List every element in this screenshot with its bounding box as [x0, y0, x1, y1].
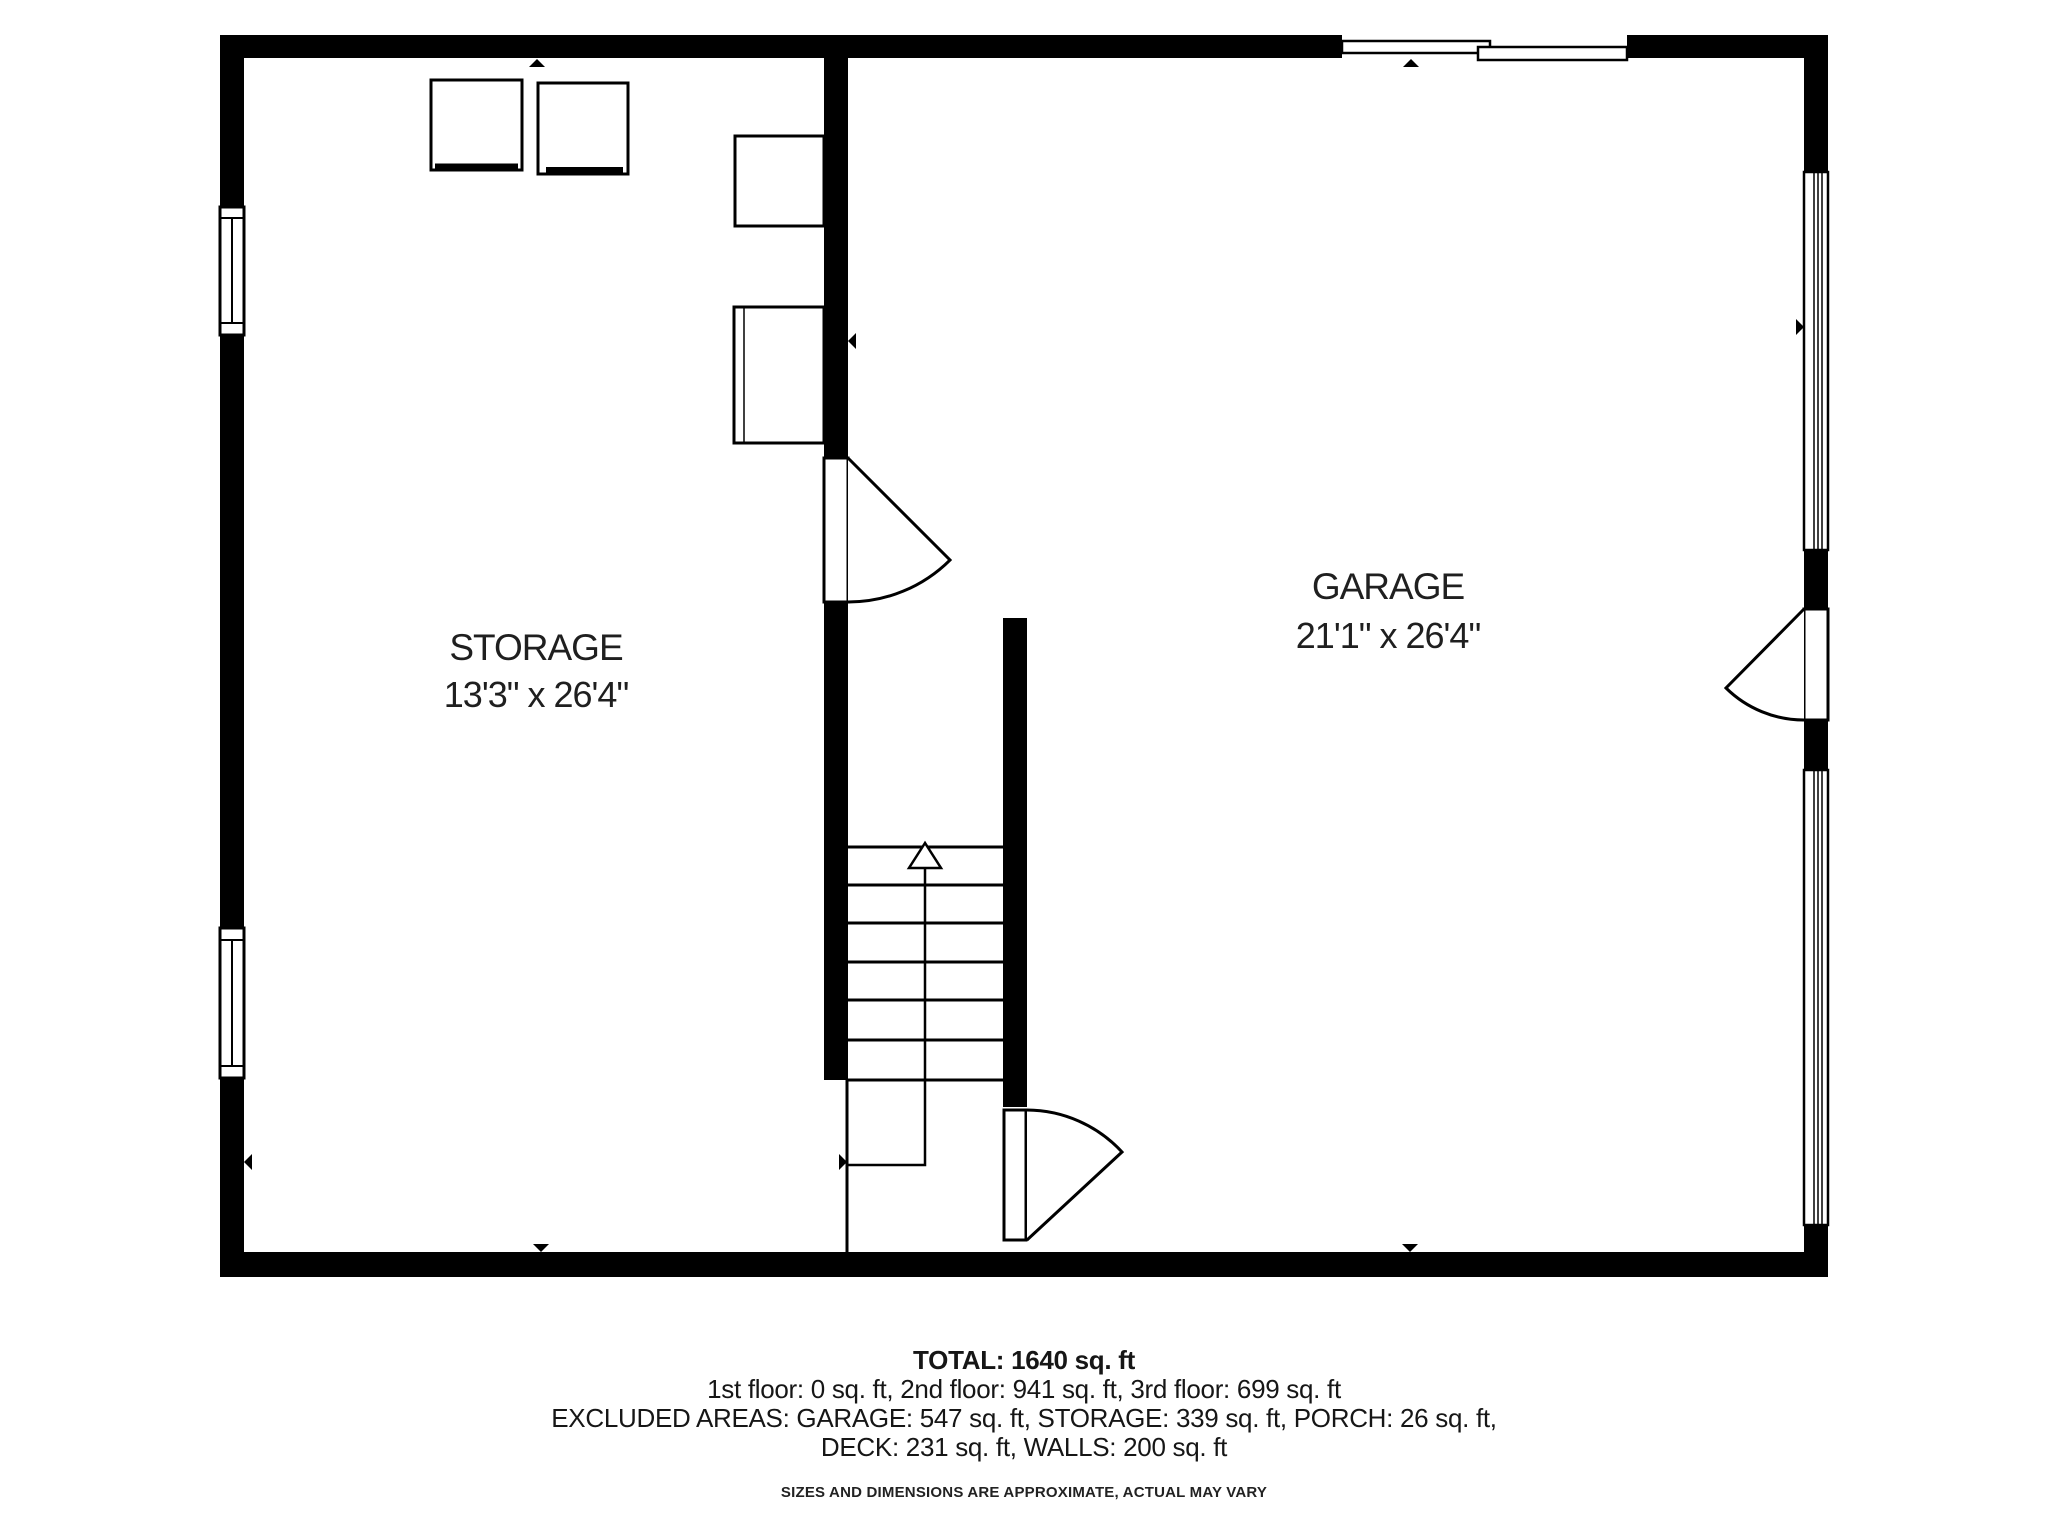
door-stairs-garage	[1004, 1110, 1122, 1240]
wall-right-2	[1804, 550, 1828, 609]
stair-direction-line	[848, 862, 925, 1165]
wall-middle-lower	[824, 602, 848, 1080]
wall-middle-upper	[824, 58, 848, 458]
storage-room-dimensions: 13'3" x 26'4"	[444, 674, 628, 716]
door-swing-arc	[1726, 609, 1804, 720]
window-right-1	[1804, 172, 1828, 550]
door-panel	[1804, 609, 1828, 720]
marker-up-garage-icon	[1403, 59, 1419, 67]
wall-top-left	[220, 35, 1342, 58]
marker-down-storage-icon	[533, 1244, 549, 1252]
appliance-square-2	[538, 83, 628, 174]
stairs	[848, 843, 1003, 1165]
area-summary: TOTAL: 1640 sq. ft 1st floor: 0 sq. ft, …	[0, 1346, 2048, 1462]
disclaimer-text: SIZES AND DIMENSIONS ARE APPROXIMATE, AC…	[0, 1484, 2048, 1501]
wall-left-1	[220, 35, 244, 207]
window-left-2	[220, 928, 244, 1078]
storage-room-label: STORAGE	[449, 627, 622, 669]
marker-left-middle-icon	[848, 333, 856, 349]
excluded-areas-text-2: DECK: 231 sq. ft, WALLS: 200 sq. ft	[0, 1433, 2048, 1462]
excluded-areas-text-1: EXCLUDED AREAS: GARAGE: 547 sq. ft, STOR…	[0, 1404, 2048, 1433]
wall-top-right	[1627, 35, 1828, 58]
floor-areas-text: 1st floor: 0 sq. ft, 2nd floor: 941 sq. …	[0, 1375, 2048, 1404]
closet-upper	[735, 136, 824, 226]
window-left-1	[220, 207, 244, 335]
garage-room-dimensions: 21'1" x 26'4"	[1296, 615, 1480, 657]
storage-fixtures	[431, 80, 824, 443]
appliance-square-1	[431, 80, 522, 170]
marker-left-wall-icon	[244, 1154, 252, 1170]
wall-bottom	[220, 1252, 1828, 1277]
door-swing-arc	[848, 458, 950, 602]
wall-stairs-right	[1003, 618, 1027, 1107]
wall-left-3	[220, 1078, 244, 1277]
marker-down-garage-icon	[1402, 1244, 1418, 1252]
door-swing-arc	[1027, 1110, 1122, 1240]
door-storage-garage	[824, 458, 950, 602]
closet-lower	[734, 307, 824, 443]
door-panel	[824, 458, 848, 602]
door-garage-exterior	[1726, 609, 1828, 720]
window-right-2	[1804, 770, 1828, 1225]
total-area-text: TOTAL: 1640 sq. ft	[0, 1346, 2048, 1375]
garage-door-panels	[1342, 41, 1627, 60]
wall-right-3	[1804, 720, 1828, 770]
garage-door-panel-right	[1478, 47, 1627, 60]
garage-door-panel-left	[1342, 41, 1490, 53]
floor-plan-drawing	[0, 0, 2048, 1536]
garage-room-label: GARAGE	[1312, 566, 1464, 608]
door-panel	[1004, 1110, 1026, 1240]
marker-up-storage-icon	[529, 59, 545, 67]
wall-left-2	[220, 335, 244, 928]
wall-right-1	[1804, 35, 1828, 172]
